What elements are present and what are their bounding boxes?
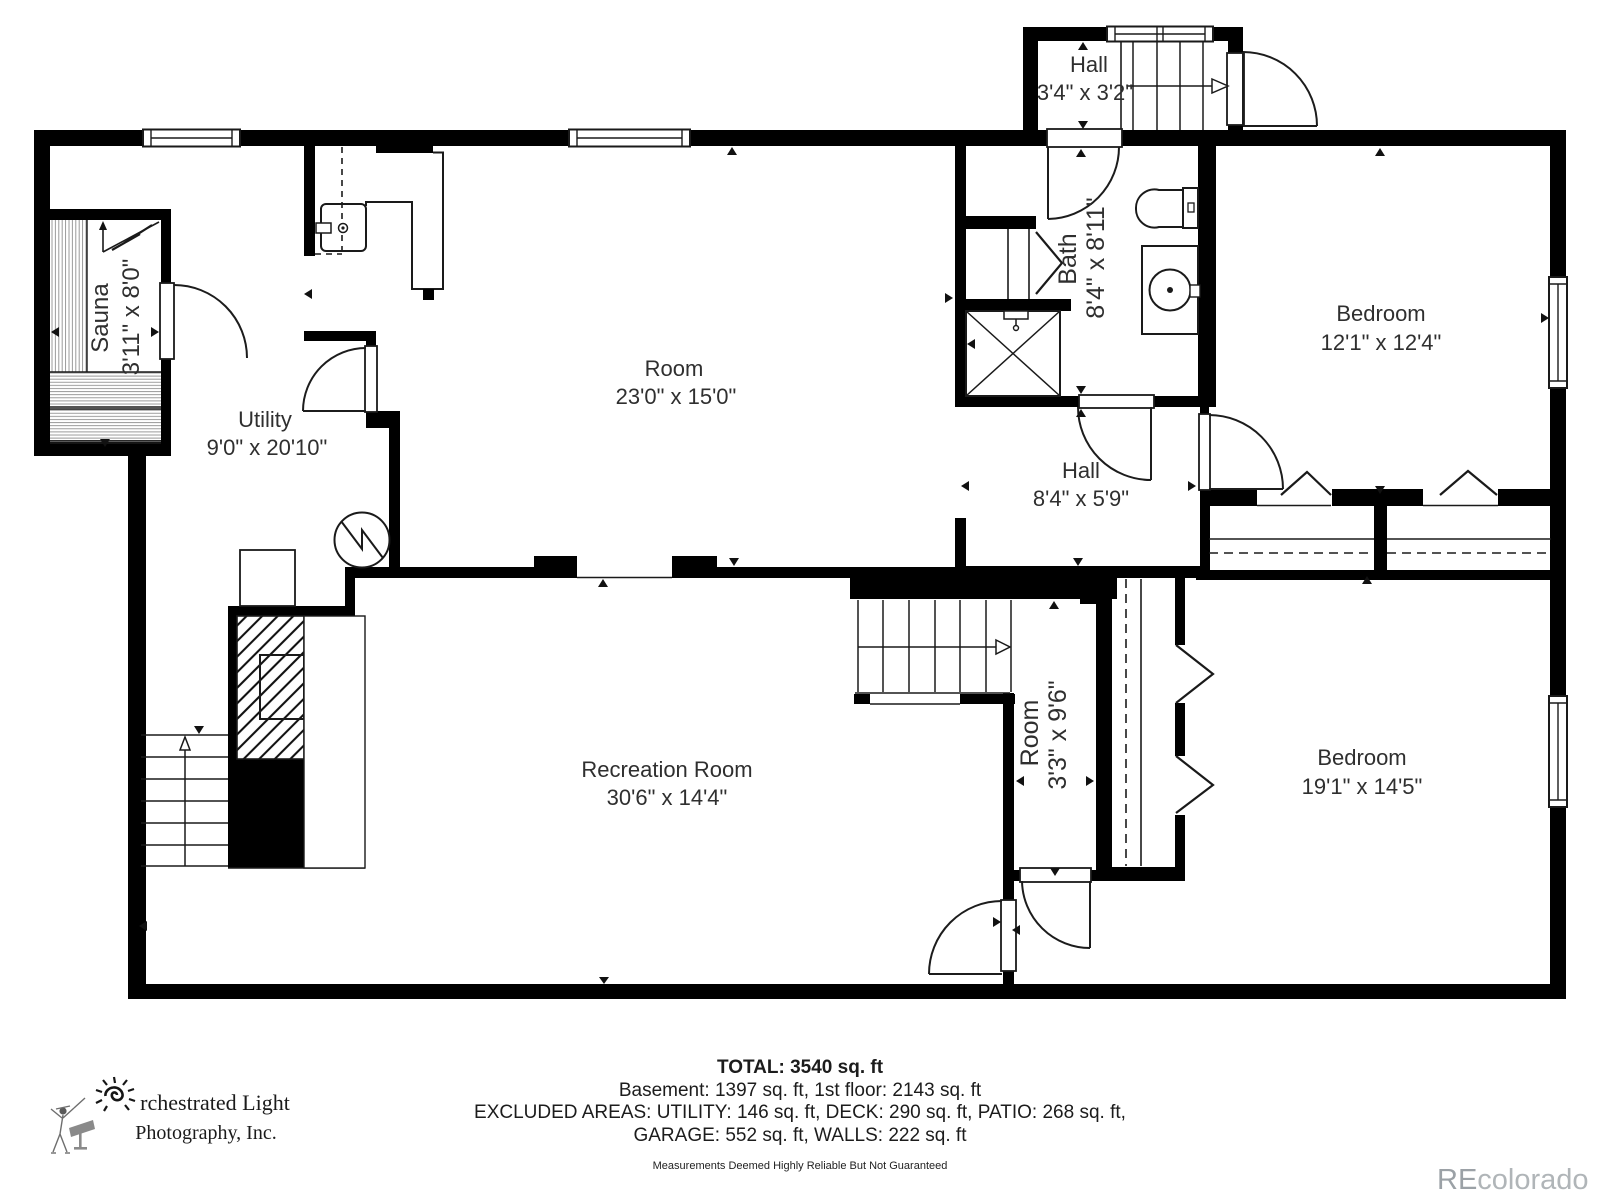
svg-text:Recreation Room: Recreation Room [581,757,752,782]
svg-text:19'1" x 14'5": 19'1" x 14'5" [1302,774,1423,799]
svg-text:Room: Room [1016,700,1044,767]
svg-text:8'4" x 8'11": 8'4" x 8'11" [1082,197,1110,318]
svg-text:Photography, Inc.: Photography, Inc. [135,1122,276,1144]
svg-text:30'6" x 14'4": 30'6" x 14'4" [607,785,728,810]
svg-text:EXCLUDED AREAS: UTILITY: 146 s: EXCLUDED AREAS: UTILITY: 146 sq. ft, DEC… [474,1102,1126,1123]
svg-text:9'0" x 20'10": 9'0" x 20'10" [207,435,328,460]
svg-text:Basement: 1397 sq. ft, 1st flo: Basement: 1397 sq. ft, 1st floor: 2143 s… [619,1080,982,1101]
svg-text:Measurements Deemed Highly Rel: Measurements Deemed Highly Reliable But … [653,1160,948,1172]
svg-text:23'0" x 15'0": 23'0" x 15'0" [616,384,737,409]
svg-text:Bedroom: Bedroom [1336,301,1425,326]
svg-text:8'4" x 5'9": 8'4" x 5'9" [1033,486,1129,511]
svg-text:3'4" x 3'2": 3'4" x 3'2" [1037,80,1133,105]
svg-text:Bedroom: Bedroom [1317,745,1406,770]
svg-text:3'11" x 8'0": 3'11" x 8'0" [118,259,145,376]
svg-text:Hall: Hall [1070,52,1108,77]
svg-text:REcolorado: REcolorado [1437,1164,1589,1196]
svg-text:Hall: Hall [1062,458,1100,483]
svg-text:3'3" x 9'6": 3'3" x 9'6" [1044,680,1072,789]
svg-text:rchestrated Light: rchestrated Light [140,1090,290,1115]
svg-text:Utility: Utility [238,407,292,432]
svg-text:Room: Room [645,356,704,381]
svg-text:Bath: Bath [1054,233,1082,284]
svg-text:Sauna: Sauna [87,283,114,353]
svg-text:TOTAL: 3540 sq. ft: TOTAL: 3540 sq. ft [717,1057,884,1078]
svg-text:GARAGE: 552 sq. ft, WALLS: 222: GARAGE: 552 sq. ft, WALLS: 222 sq. ft [633,1125,967,1146]
svg-text:12'1" x 12'4": 12'1" x 12'4" [1321,330,1442,355]
